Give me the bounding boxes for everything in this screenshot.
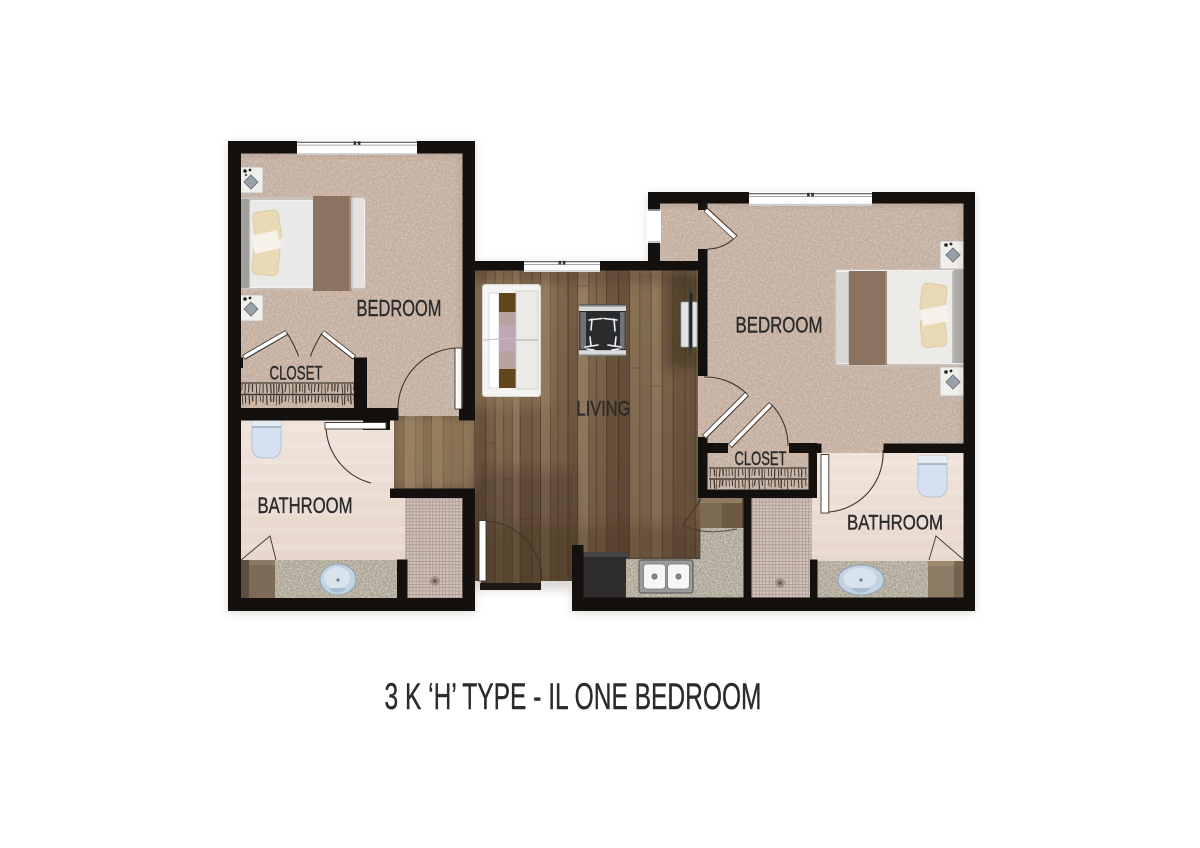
svg-text:BATHROOM: BATHROOM bbox=[847, 511, 943, 535]
svg-text:CLOSET: CLOSET bbox=[735, 449, 787, 470]
svg-text:BEDROOM: BEDROOM bbox=[357, 295, 442, 321]
svg-text:CLOSET: CLOSET bbox=[270, 364, 323, 385]
svg-text:BATHROOM: BATHROOM bbox=[258, 493, 353, 518]
svg-text:3 K ‘H’ TYPE - IL ONE BEDROOM: 3 K ‘H’ TYPE - IL ONE BEDROOM bbox=[385, 676, 762, 717]
svg-text:BEDROOM: BEDROOM bbox=[736, 313, 823, 338]
svg-text:LIVING: LIVING bbox=[577, 397, 631, 421]
